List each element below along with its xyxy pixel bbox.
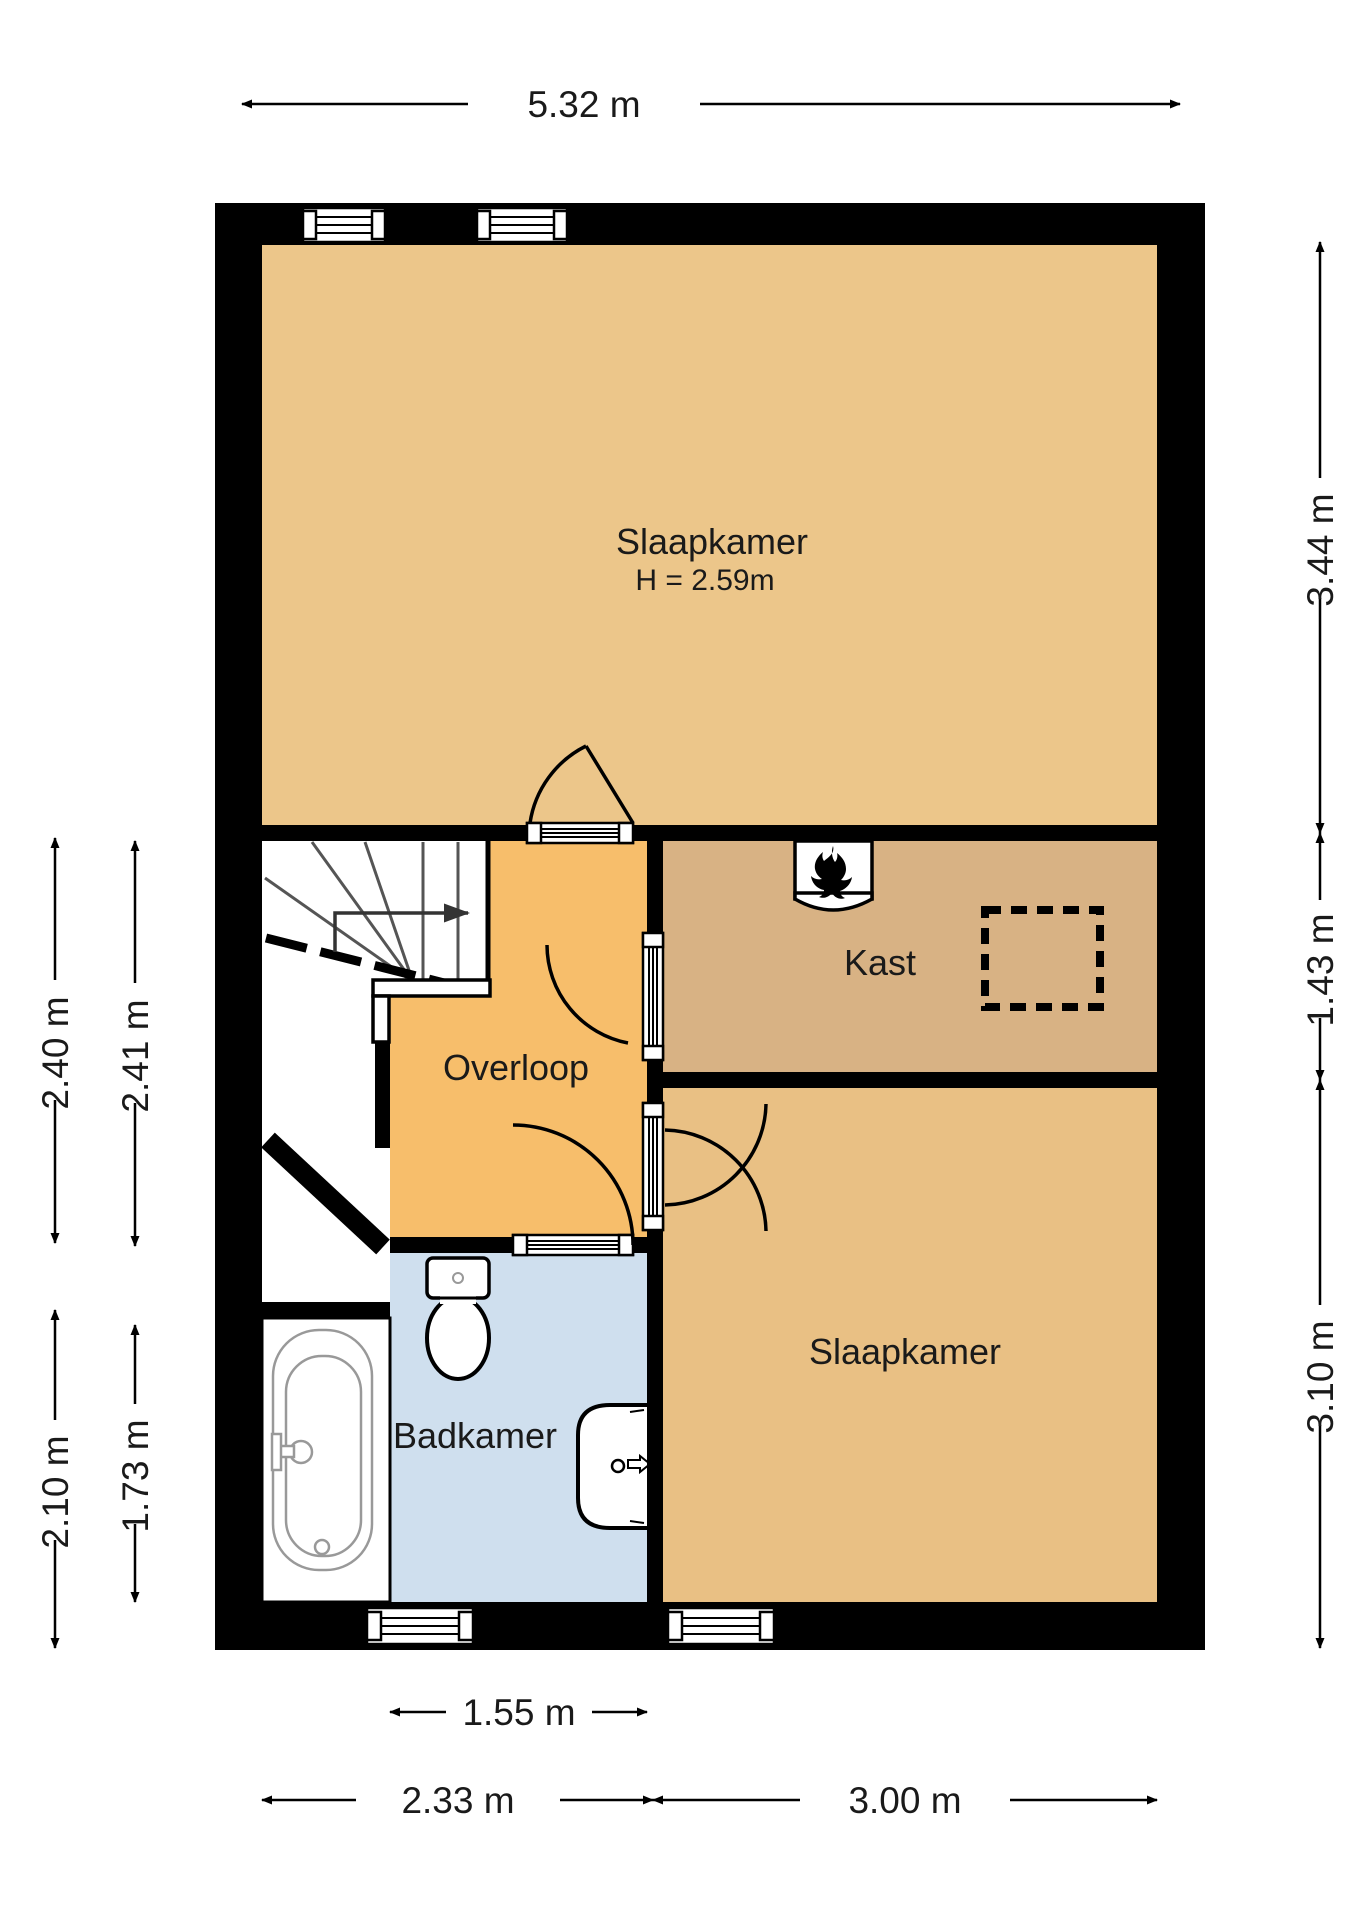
boiler [795, 841, 872, 910]
wall-left [215, 203, 262, 1650]
dim-top-width: 5.32 m [242, 84, 1180, 125]
label-kast: Kast [844, 942, 916, 983]
dim-left-inner-lower: 1.73 m [115, 1325, 156, 1602]
dim-label-right-bottom: 3.10 m [1300, 1320, 1341, 1433]
dim-bottom-badkamer: 1.55 m [390, 1692, 647, 1733]
dim-label-right-middle: 1.43 m [1300, 913, 1341, 1026]
wall-interior-1a [262, 825, 527, 841]
dim-left-outer-upper: 2.40 m [35, 838, 76, 1243]
label-badkamer: Badkamer [393, 1415, 557, 1456]
dim-label-left-outer-lower: 2.10 m [35, 1435, 76, 1548]
wall-interior-1b [633, 825, 1157, 841]
wall-vertical-a [647, 841, 663, 933]
dim-label-left-outer-upper: 2.40 m [35, 996, 76, 1109]
wall-overloop-badkamer-b [633, 1237, 647, 1253]
dim-label-right-top: 3.44 m [1300, 493, 1341, 606]
window-top-2 [477, 208, 567, 242]
label-overloop: Overloop [443, 1047, 589, 1088]
dim-left-inner-upper: 2.41 m [115, 841, 156, 1246]
toilet-bowl [427, 1297, 489, 1379]
dim-label-left-inner-upper: 2.41 m [115, 999, 156, 1112]
toilet-tank [427, 1258, 489, 1298]
dim-left-outer-lower: 2.10 m [35, 1310, 76, 1648]
dim-right-middle: 1.43 m [1300, 833, 1341, 1080]
label-slaapkamer-top: Slaapkamer [616, 521, 808, 562]
dim-label-top: 5.32 m [527, 84, 640, 125]
sink [578, 1405, 650, 1528]
dim-bottom-right: 3.00 m [653, 1780, 1157, 1821]
label-slaapkamer-bottom: Slaapkamer [809, 1331, 1001, 1372]
bathtub-drain [315, 1540, 329, 1554]
dim-right-top: 3.44 m [1300, 242, 1341, 833]
wall-right [1157, 203, 1205, 1650]
wall-vertical-c [647, 1230, 663, 1602]
dim-label-bottom-left: 2.33 m [401, 1780, 514, 1821]
floorplan-drawing: Slaapkamer H = 2.59m Kast Overloop Badka… [0, 0, 1358, 1920]
room-overloop [390, 841, 647, 1240]
dim-label-bottom-badkamer: 1.55 m [462, 1692, 575, 1733]
dim-bottom-left: 2.33 m [262, 1780, 653, 1821]
stair-break-line [266, 938, 448, 984]
label-height-note: H = 2.59m [635, 564, 774, 597]
dim-label-bottom-right: 3.00 m [848, 1780, 961, 1821]
wall-diagonal [268, 1140, 383, 1247]
stair-landing-rail [373, 980, 490, 996]
wall-kast-bedroom [647, 1072, 1157, 1088]
rooms [262, 245, 1157, 1602]
bathtub-faucet-base [272, 1434, 281, 1470]
floorplan-page: Slaapkamer H = 2.59m Kast Overloop Badka… [0, 0, 1358, 1920]
window-top-1 [303, 208, 385, 242]
window-bottom-2 [668, 1608, 774, 1644]
dim-right-bottom: 3.10 m [1300, 1080, 1341, 1648]
wall-overloop-badkamer-a [390, 1237, 513, 1253]
wall-alcove [262, 1302, 390, 1318]
stair-newel [373, 996, 389, 1042]
bathtub-area [262, 1318, 390, 1602]
dim-label-left-inner-lower: 1.73 m [115, 1419, 156, 1532]
toilet [427, 1258, 489, 1379]
wall-vertical-b [647, 1060, 663, 1103]
window-bottom-1 [367, 1608, 473, 1644]
